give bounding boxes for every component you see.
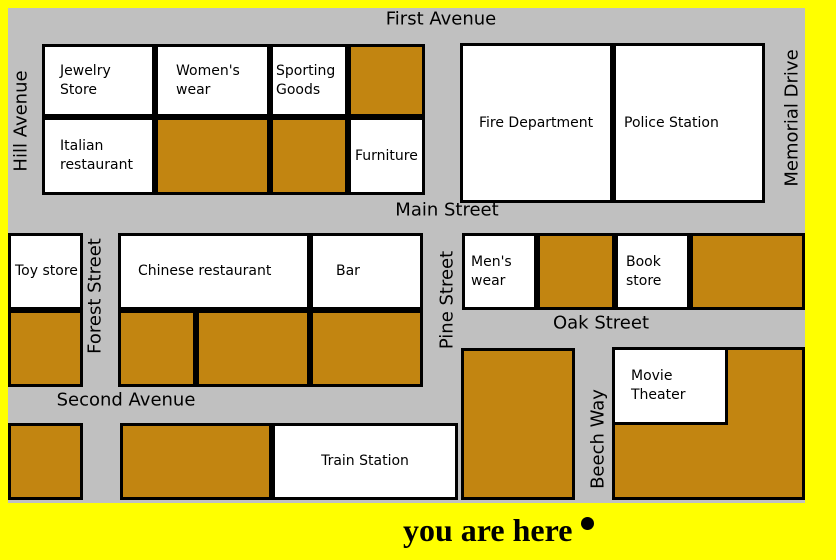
unlabeled-building <box>461 348 575 500</box>
building-furniture: Furniture <box>348 117 425 195</box>
unlabeled-building <box>120 423 272 500</box>
furniture-label: Furniture <box>355 147 418 166</box>
you-are-here-text: you are here <box>403 512 572 548</box>
you-are-here-dot <box>581 517 594 530</box>
street-label-hill-avenue: Hill Avenue <box>11 70 32 171</box>
building-toy-store: Toy store <box>8 233 83 310</box>
building-book-store: Book store <box>615 233 690 310</box>
city-map-page: Jewelry Store Women's wear Sporting Good… <box>0 0 836 560</box>
street-label-memorial-drive: Memorial Drive <box>782 49 803 186</box>
building-sporting-goods: Sporting Goods <box>270 44 348 117</box>
building-chinese-restaurant: Chinese restaurant <box>118 233 310 310</box>
unlabeled-building <box>270 117 348 195</box>
bar-label: Bar <box>336 262 360 281</box>
unlabeled-building <box>310 310 423 387</box>
street-label-oak-street: Oak Street <box>553 313 649 334</box>
unlabeled-building <box>118 310 196 387</box>
building-movie-theater: Movie Theater <box>612 347 728 425</box>
street-label-first-avenue: First Avenue <box>386 9 496 30</box>
street-label-main-street: Main Street <box>395 200 498 221</box>
jewelry-store-label: Jewelry Store <box>60 62 152 100</box>
building-bar: Bar <box>310 233 423 310</box>
unlabeled-building <box>8 423 83 500</box>
womens-wear-label: Women's wear <box>176 62 267 100</box>
book-store-label: Book store <box>626 253 687 291</box>
unlabeled-building <box>348 44 425 117</box>
sporting-goods-label: Sporting Goods <box>276 62 345 100</box>
movie-theater-label: Movie Theater <box>631 367 713 405</box>
building-jewelry-store: Jewelry Store <box>42 44 155 117</box>
unlabeled-building <box>690 233 805 310</box>
building-womens-wear: Women's wear <box>155 44 270 117</box>
street-label-second-avenue: Second Avenue <box>57 390 196 411</box>
unlabeled-building <box>8 310 83 387</box>
unlabeled-building <box>196 310 310 387</box>
building-italian-restaurant: Italian restaurant <box>42 117 155 195</box>
toy-store-label: Toy store <box>15 262 78 281</box>
you-are-here-marker: you are here <box>403 514 594 546</box>
train-station-label: Train Station <box>321 452 409 471</box>
building-train-station: Train Station <box>272 423 458 500</box>
street-label-beech-way: Beech Way <box>588 389 609 489</box>
building-fire-department: Fire Department <box>460 43 613 203</box>
street-map: Jewelry Store Women's wear Sporting Good… <box>8 8 805 503</box>
chinese-restaurant-label: Chinese restaurant <box>138 262 271 281</box>
italian-restaurant-label: Italian restaurant <box>60 137 152 175</box>
police-station-label: Police Station <box>624 114 719 133</box>
street-label-forest-street: Forest Street <box>85 238 106 354</box>
mens-wear-label: Men's wear <box>471 253 534 291</box>
street-label-pine-street: Pine Street <box>437 251 458 349</box>
fire-department-label: Fire Department <box>479 114 593 133</box>
building-mens-wear: Men's wear <box>462 233 537 310</box>
unlabeled-building <box>155 117 270 195</box>
unlabeled-building <box>537 233 615 310</box>
building-police-station: Police Station <box>613 43 765 203</box>
